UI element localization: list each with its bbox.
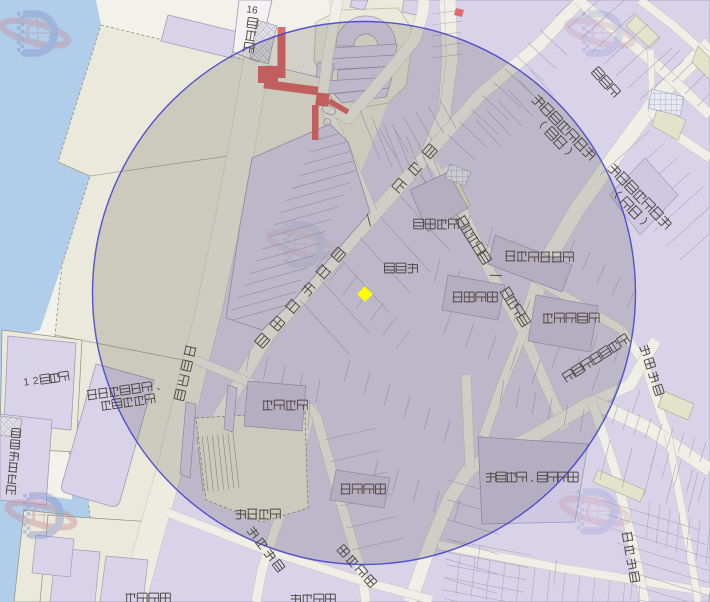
svg-text:16: 16 bbox=[246, 4, 259, 17]
